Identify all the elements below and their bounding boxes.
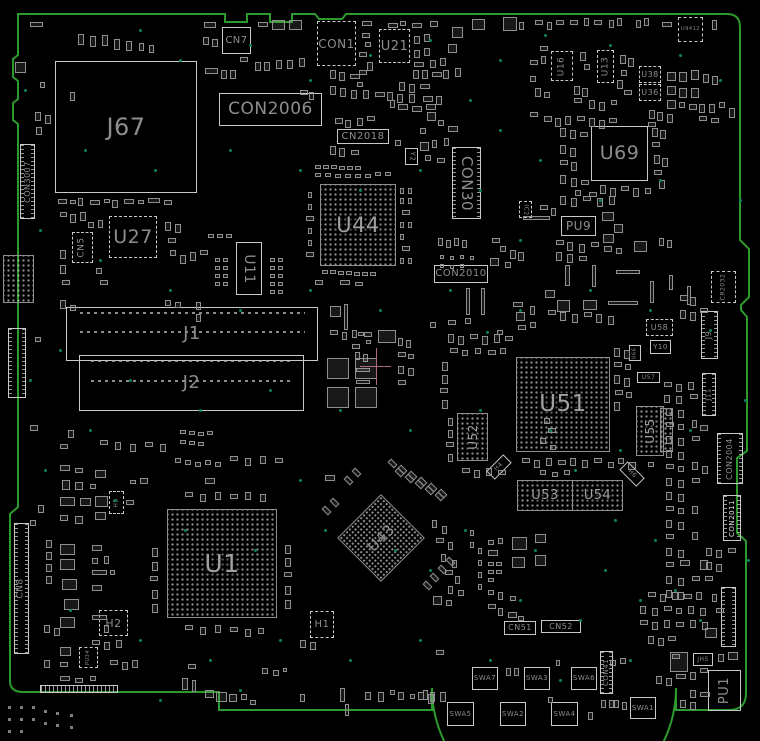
via-dot — [599, 199, 602, 202]
passive-part — [152, 562, 158, 571]
passive-part — [92, 545, 102, 551]
passive-part — [345, 704, 349, 716]
passive-part — [478, 548, 482, 554]
passive-part — [448, 44, 457, 53]
passive-part — [408, 368, 414, 376]
passive-part — [574, 86, 580, 95]
passive-part — [362, 33, 370, 38]
component-U11[interactable]: U11 — [236, 242, 262, 295]
passive-part — [540, 205, 548, 210]
component-U52[interactable]: U52 — [457, 413, 488, 461]
component-label-Y10: Y10 — [653, 344, 668, 351]
passive-part — [409, 94, 415, 103]
passive-part — [678, 494, 684, 502]
component-SWA6[interactable]: SWA6 — [571, 667, 597, 690]
passive-part — [512, 557, 525, 568]
passive-part — [352, 344, 360, 349]
passive-part — [175, 458, 181, 463]
passive-part — [345, 174, 351, 178]
passive-part — [300, 90, 308, 95]
passive-part — [446, 600, 452, 606]
passive-part — [355, 282, 363, 286]
passive-part — [126, 500, 134, 505]
component-CN51[interactable]: CN51 — [504, 621, 536, 635]
component-CN2018[interactable]: CN2018 — [337, 129, 389, 144]
passive-part — [465, 318, 471, 324]
passive-part — [175, 224, 181, 233]
passive-part — [667, 114, 673, 123]
passive-part — [448, 320, 456, 325]
component-U51[interactable]: U51 — [516, 357, 610, 452]
component-U58[interactable]: U58 — [646, 319, 673, 336]
passive-part — [170, 250, 176, 256]
passive-part — [356, 380, 370, 384]
passive-part — [375, 172, 381, 176]
component-CN52[interactable]: CN52 — [541, 620, 581, 633]
component-pad-grid-left[interactable] — [3, 255, 34, 303]
passive-part — [603, 234, 614, 243]
component-SWA7[interactable]: SWA7 — [472, 667, 498, 690]
passive-part — [262, 668, 268, 674]
passive-part — [46, 576, 52, 584]
passive-part — [60, 265, 66, 274]
passive-part — [330, 498, 340, 508]
passive-part — [602, 212, 614, 221]
passive-part — [700, 560, 708, 570]
component-CON41[interactable]: CON41 — [600, 651, 613, 694]
passive-part — [430, 60, 436, 68]
component-label-CON2004: CON2004 — [726, 438, 734, 480]
passive-part — [92, 615, 107, 620]
passive-part — [547, 22, 552, 30]
passive-part — [622, 702, 627, 710]
passive-part — [692, 436, 700, 441]
component-U36[interactable]: U36 — [639, 84, 661, 101]
test-pad — [8, 706, 11, 709]
passive-part — [496, 570, 502, 574]
passive-part — [567, 242, 573, 251]
passive-part — [223, 266, 228, 270]
passive-part — [555, 118, 561, 127]
via-dot — [744, 399, 747, 402]
component-U69[interactable]: U69 — [591, 126, 648, 181]
passive-part — [272, 20, 285, 30]
passive-part — [126, 41, 132, 51]
passive-part — [690, 297, 696, 306]
passive-part — [648, 462, 654, 467]
passive-part — [432, 520, 437, 528]
passive-part — [488, 540, 494, 545]
via-dot — [429, 569, 432, 572]
passive-part — [548, 697, 553, 703]
passive-part — [488, 570, 494, 574]
passive-part — [522, 458, 530, 463]
passive-part — [678, 466, 684, 472]
component-label-U52: U52 — [467, 424, 479, 450]
passive-part — [215, 282, 220, 286]
passive-part — [544, 92, 550, 98]
passive-part — [270, 274, 275, 278]
passive-part — [617, 80, 623, 89]
component-Y2[interactable]: Y2 — [405, 148, 418, 165]
passive-part — [505, 262, 511, 268]
passive-part — [633, 188, 639, 197]
passive-part — [250, 700, 256, 705]
passive-part — [408, 188, 412, 194]
passive-part — [648, 592, 656, 597]
passive-part — [441, 554, 446, 562]
component-J11[interactable]: J11 — [702, 373, 716, 416]
passive-part — [571, 162, 577, 171]
passive-part — [258, 628, 264, 634]
via-dot — [519, 239, 522, 242]
component-U53[interactable]: U53 — [517, 480, 573, 511]
component-SWA5[interactable]: SWA5 — [447, 702, 474, 726]
component-label-U21: U21 — [381, 40, 409, 53]
component-U27[interactable]: U27 — [109, 216, 157, 258]
passive-part — [666, 562, 674, 567]
passive-part — [330, 306, 341, 317]
passive-part — [196, 302, 201, 310]
passive-part — [678, 522, 684, 530]
passive-part — [30, 22, 43, 27]
passive-part — [330, 330, 338, 335]
passive-part — [455, 576, 460, 584]
passive-part — [510, 250, 516, 259]
passive-part — [500, 246, 506, 252]
component-U66[interactable]: U66 — [629, 345, 641, 361]
passive-part — [388, 23, 398, 28]
passive-part — [60, 515, 68, 521]
component-label-J9: J9 — [705, 331, 713, 339]
passive-part — [35, 337, 41, 342]
passive-part — [414, 62, 424, 67]
passive-part — [110, 570, 115, 575]
passive-part — [420, 84, 430, 89]
passive-part — [182, 678, 188, 690]
component-U1[interactable]: U1 — [167, 509, 277, 618]
passive-part — [679, 88, 687, 98]
passive-part — [152, 548, 158, 557]
passive-part — [729, 108, 735, 118]
passive-part — [481, 288, 485, 315]
passive-part — [678, 452, 684, 460]
passive-part — [207, 431, 213, 435]
passive-part — [494, 334, 500, 343]
component-SWA3[interactable]: SWA3 — [524, 667, 550, 690]
passive-part — [365, 692, 371, 700]
passive-part — [185, 460, 191, 465]
passive-part — [718, 654, 724, 662]
passive-part — [60, 559, 75, 570]
component-bottom-pin-strip[interactable] — [40, 685, 118, 693]
passive-part — [215, 492, 221, 500]
passive-part — [692, 506, 698, 514]
passive-part — [339, 166, 345, 170]
component-label-J11: J11 — [706, 388, 713, 400]
passive-part — [347, 166, 353, 170]
passive-part — [600, 185, 606, 194]
passive-part — [270, 290, 275, 294]
passive-part — [433, 596, 442, 605]
component-label-H6: H6 — [627, 469, 638, 480]
component-label-CON30: CON30 — [459, 155, 474, 210]
selection-crosshair-v — [376, 348, 377, 385]
passive-part — [579, 256, 587, 261]
passive-part — [46, 552, 52, 560]
via-dot — [44, 469, 47, 472]
passive-part — [165, 222, 171, 231]
passive-part — [614, 362, 622, 367]
passive-part — [703, 74, 709, 83]
component-J2[interactable]: J2 — [79, 355, 304, 411]
passive-part — [700, 692, 710, 697]
component-edge-connector-left[interactable] — [8, 328, 26, 398]
component-U13[interactable]: U13 — [597, 50, 614, 83]
passive-part — [518, 616, 524, 621]
via-dot — [649, 309, 652, 312]
component-PU9[interactable]: PU9 — [561, 216, 596, 236]
passive-part — [608, 316, 614, 325]
component-U21[interactable]: U21 — [379, 29, 410, 63]
passive-part — [88, 222, 94, 228]
passive-part — [62, 579, 77, 590]
passive-part — [470, 256, 474, 260]
passive-part — [160, 444, 166, 452]
component-U38[interactable]: U38 — [639, 66, 661, 83]
passive-part — [205, 478, 215, 484]
passive-part — [62, 480, 70, 490]
passive-part — [398, 338, 403, 346]
via-dot — [479, 189, 482, 192]
passive-part — [571, 198, 577, 207]
component-CON3007[interactable]: CON3007 — [20, 144, 35, 219]
passive-part — [609, 196, 615, 205]
passive-part — [350, 74, 360, 79]
via-dot — [589, 289, 592, 292]
via-dot — [269, 389, 272, 392]
component-SWA1[interactable]: SWA1 — [630, 697, 656, 719]
via-dot — [24, 89, 27, 92]
passive-part — [35, 112, 41, 121]
passive-part — [478, 584, 482, 590]
passive-part — [95, 496, 108, 507]
passive-part — [666, 506, 674, 511]
passive-part — [666, 450, 672, 458]
component-CON2006[interactable]: CON2006 — [219, 93, 322, 126]
passive-part — [408, 354, 414, 359]
passive-part — [478, 560, 482, 566]
passive-part — [649, 110, 655, 119]
component-label-IC2: IC2 — [523, 204, 529, 215]
test-pad — [56, 724, 59, 727]
passive-part — [488, 590, 494, 595]
passive-part — [534, 460, 540, 468]
passive-part — [424, 48, 430, 56]
passive-part — [30, 520, 36, 526]
component-label-CN51: CN51 — [508, 624, 532, 632]
passive-part — [616, 248, 622, 254]
passive-part — [690, 702, 696, 710]
passive-part — [92, 640, 100, 645]
passive-part — [132, 660, 138, 668]
component-U44[interactable]: U44 — [320, 184, 396, 266]
component-label-SWA3: SWA3 — [526, 675, 548, 682]
component-U54[interactable]: U54 — [572, 480, 623, 511]
passive-part — [230, 70, 236, 79]
passive-part — [669, 275, 673, 290]
passive-part — [652, 128, 658, 137]
passive-part — [466, 288, 470, 315]
passive-part — [230, 627, 238, 632]
passive-part — [367, 116, 375, 121]
via-dot — [674, 589, 677, 592]
passive-part — [102, 35, 108, 46]
passive-part — [688, 606, 694, 614]
via-dot — [339, 409, 342, 412]
passive-part — [560, 160, 568, 165]
passive-part — [584, 18, 589, 26]
passive-part — [300, 640, 306, 648]
passive-part — [437, 158, 445, 163]
component-H5[interactable]: H5 — [109, 491, 124, 514]
component-U57[interactable]: U57 — [637, 372, 660, 383]
component-CN5[interactable]: CN5 — [72, 232, 93, 263]
passive-part — [678, 592, 684, 600]
passive-part — [116, 640, 122, 648]
via-dot — [579, 619, 582, 622]
passive-part — [306, 216, 314, 221]
component-H1[interactable]: H1 — [310, 611, 334, 638]
passive-part — [666, 422, 674, 427]
passive-part — [284, 572, 292, 577]
passive-part — [200, 494, 206, 502]
component-U43[interactable]: U43 — [337, 494, 425, 582]
passive-part — [519, 22, 524, 30]
component-J9[interactable]: J9 — [701, 311, 718, 359]
passive-part — [621, 186, 629, 191]
passive-part — [335, 118, 343, 124]
passive-part — [676, 384, 682, 392]
passive-part — [488, 604, 496, 609]
component-Y10[interactable]: Y10 — [650, 340, 671, 354]
passive-part — [678, 480, 684, 488]
passive-part — [664, 395, 670, 403]
component-CON30[interactable]: CON30 — [452, 147, 481, 219]
component-right-edge-connector[interactable] — [721, 587, 736, 647]
passive-part — [591, 242, 599, 247]
passive-part — [488, 578, 494, 582]
component-label-U53: U53 — [531, 489, 559, 502]
passive-part — [75, 468, 83, 473]
passive-part — [560, 196, 566, 205]
passive-part — [410, 694, 415, 699]
component-U16[interactable]: U16 — [551, 51, 573, 81]
passive-part — [500, 348, 506, 354]
via-dot — [169, 289, 172, 292]
passive-part — [430, 322, 436, 328]
component-CON2004[interactable]: CON2004 — [717, 433, 743, 484]
passive-part — [614, 700, 619, 708]
component-J67[interactable]: J67 — [55, 61, 197, 193]
passive-part — [678, 424, 684, 430]
component-SWA4[interactable]: SWA4 — [551, 702, 578, 726]
component-label-PU34: PU34 — [86, 650, 91, 665]
passive-part — [692, 576, 700, 581]
component-CR2032[interactable]: CR2032 — [711, 271, 736, 303]
passive-part — [413, 70, 419, 79]
passive-part — [712, 76, 718, 85]
passive-part — [15, 62, 26, 73]
passive-part — [455, 68, 461, 77]
test-pad — [20, 718, 23, 721]
component-J1[interactable]: J1 — [66, 307, 318, 361]
component-CON1[interactable]: CON1 — [317, 21, 356, 66]
passive-part — [217, 234, 223, 238]
passive-part — [285, 545, 291, 554]
passive-part — [666, 436, 672, 444]
passive-part — [408, 222, 412, 228]
boardview-canvas[interactable]: J67CN7CON1U21CON2006CN2018Y2CON30U16U13U… — [0, 0, 760, 741]
component-JH5[interactable]: JH5 — [693, 653, 713, 666]
component-label-U16: U16 — [557, 56, 566, 76]
via-dot — [59, 349, 62, 352]
passive-part — [95, 470, 106, 478]
passive-part — [691, 88, 699, 98]
component-CN7[interactable]: CN7 — [222, 27, 251, 54]
component-SWA2[interactable]: SWA2 — [500, 702, 526, 726]
passive-part — [98, 220, 103, 228]
passive-part — [260, 494, 266, 502]
passive-part — [652, 608, 658, 616]
via-dot — [249, 44, 252, 47]
passive-part — [185, 625, 193, 630]
passive-part — [402, 210, 410, 215]
passive-part — [446, 240, 451, 248]
passive-part — [654, 170, 662, 175]
component-CON2011[interactable]: CON2011 — [723, 495, 741, 541]
component-label-J1: J1 — [183, 325, 201, 343]
passive-part — [95, 512, 106, 520]
passive-part — [711, 118, 719, 123]
passive-part — [728, 548, 736, 553]
test-pad — [32, 718, 35, 721]
component-U9412[interactable]: U9412 — [678, 17, 703, 42]
passive-part — [398, 352, 406, 357]
test-pad — [32, 706, 35, 709]
passive-part — [624, 350, 630, 359]
passive-part — [438, 238, 443, 246]
component-CN8[interactable]: CN8 — [14, 523, 29, 654]
passive-part — [255, 62, 261, 71]
passive-part — [331, 165, 337, 169]
passive-part — [412, 23, 422, 28]
component-PU1[interactable]: PU1 — [708, 670, 741, 711]
passive-part — [666, 478, 672, 486]
component-label-CN7: CN7 — [225, 36, 247, 46]
passive-part — [692, 420, 697, 428]
passive-part — [614, 348, 620, 357]
passive-part — [557, 300, 570, 312]
passive-part — [680, 560, 690, 566]
passive-part — [92, 570, 107, 575]
passive-part — [556, 20, 564, 25]
passive-part — [440, 255, 444, 259]
passive-part — [610, 660, 616, 666]
passive-part — [540, 438, 546, 444]
passive-part — [80, 212, 86, 221]
component-PU34[interactable]: PU34 — [79, 647, 98, 668]
